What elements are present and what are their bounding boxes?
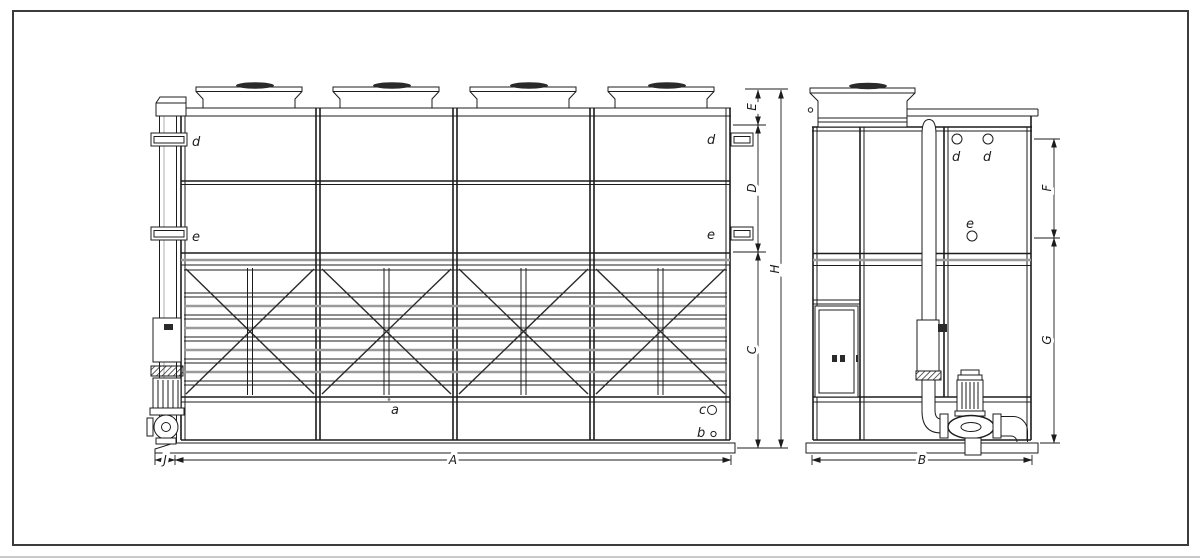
- port-label-e: e: [966, 217, 974, 232]
- basin: [155, 397, 735, 453]
- front-view: d d e e a c b E D C: [147, 82, 788, 467]
- fan-hub: [236, 82, 274, 88]
- fan-units: [196, 82, 714, 108]
- discharge-stub: [965, 438, 981, 455]
- dim-label-C: C: [745, 345, 759, 354]
- door-label-mark: [856, 355, 858, 362]
- access-door: [815, 306, 858, 397]
- cooling-tower-technical-drawing: d d e e a c b E D C: [0, 0, 1200, 559]
- dim-label-H: H: [768, 264, 782, 273]
- panel-label-e-right: e: [707, 228, 715, 243]
- door-label-mark: [832, 355, 837, 362]
- side-view: d d e F G B: [806, 83, 1060, 467]
- pipe-elbow-top: [156, 97, 186, 116]
- pump-volute: [948, 416, 994, 439]
- dim-label-F: F: [1040, 183, 1054, 191]
- connection-ports: d d e: [952, 134, 993, 241]
- pipe-bracket: [151, 133, 187, 146]
- valve-actuator: [938, 324, 947, 332]
- basin-label-b: b: [697, 426, 705, 441]
- fan-hub: [648, 82, 686, 88]
- dim-label-G: G: [1040, 335, 1054, 344]
- side-basin-rim: [806, 443, 1038, 453]
- fan-unit: [196, 82, 302, 108]
- side-fan-unit: [808, 83, 915, 127]
- drain-port-b: [711, 431, 716, 436]
- door-label-mark: [840, 355, 845, 362]
- port-d-left: [952, 134, 962, 144]
- pump-motor: [150, 378, 184, 415]
- sheet-border: [13, 11, 1188, 545]
- inlet-flange: [940, 414, 948, 438]
- panel-label-d-left: d: [192, 135, 201, 150]
- riser-pipe: [922, 120, 936, 321]
- port-e: [967, 231, 977, 241]
- panel-label-d-right: d: [707, 133, 716, 148]
- fan-unit: [608, 82, 714, 108]
- side-pump: [948, 370, 1028, 455]
- discharge-pipe: [1001, 417, 1028, 443]
- fan-unit: [470, 82, 576, 108]
- label-a-dot: [388, 398, 391, 401]
- pipe-elbow: [922, 380, 941, 433]
- port-label-d-right: d: [983, 150, 992, 165]
- valve-indicator: [164, 324, 173, 330]
- pump-volute: [147, 415, 178, 444]
- panel-label-e-left: e: [192, 230, 200, 245]
- valve-body: [917, 320, 939, 371]
- dim-label-A: A: [448, 453, 457, 467]
- casing: [180, 108, 731, 440]
- louver-lines: [184, 270, 727, 385]
- fan-unit: [333, 82, 439, 108]
- fan-hub: [510, 82, 548, 88]
- dim-label-E: E: [745, 103, 759, 111]
- port-d-right: [983, 134, 993, 144]
- bolt-dot: [808, 108, 812, 112]
- pipe-flange: [916, 371, 941, 380]
- basin-label-a: a: [391, 403, 399, 418]
- fan-hub: [373, 82, 411, 88]
- dim-label-B: B: [918, 453, 926, 467]
- pipe-bracket: [151, 227, 187, 240]
- outlet-flange: [993, 414, 1001, 438]
- pipe-flange: [151, 366, 183, 376]
- fan-hub: [849, 83, 887, 89]
- front-view-dimensions: E D C H J A: [155, 89, 788, 467]
- drain-port-c: [708, 406, 717, 415]
- cross-braces: [186, 268, 725, 395]
- port-label-d-left: d: [952, 150, 961, 165]
- basin-rim: [155, 443, 735, 453]
- dim-label-D: D: [745, 183, 759, 192]
- basin-label-c: c: [699, 403, 706, 418]
- drawing-page: d d e e a c b E D C: [0, 0, 1200, 559]
- top-deck-band: [907, 109, 1038, 116]
